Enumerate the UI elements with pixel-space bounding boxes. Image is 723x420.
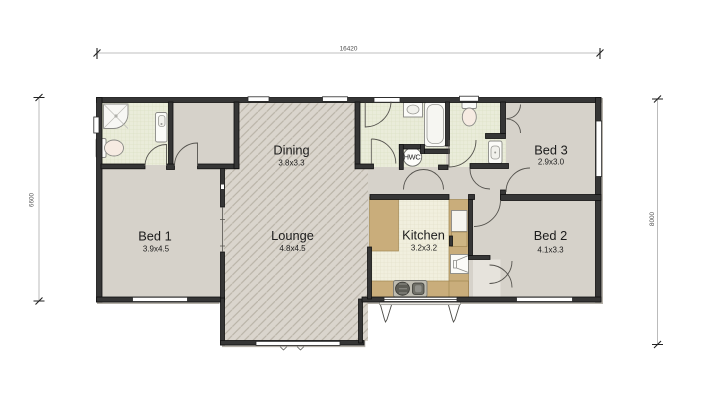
svg-text:Bed 2: Bed 2: [534, 228, 567, 243]
svg-text:Bed 1: Bed 1: [138, 229, 171, 244]
svg-text:Dining: Dining: [273, 143, 309, 158]
svg-text:HWC: HWC: [404, 153, 422, 162]
svg-text:3.8x3.3: 3.8x3.3: [278, 159, 305, 168]
svg-text:Kitchen: Kitchen: [402, 228, 445, 243]
svg-text:3.9x4.5: 3.9x4.5: [143, 245, 170, 254]
svg-text:4.8x4.5: 4.8x4.5: [279, 244, 306, 253]
svg-text:8000: 8000: [649, 211, 656, 226]
svg-text:Bed 3: Bed 3: [534, 143, 567, 158]
svg-text:3.2x3.2: 3.2x3.2: [411, 244, 438, 253]
svg-text:16420: 16420: [340, 46, 358, 53]
svg-text:4.1x3.3: 4.1x3.3: [537, 246, 564, 255]
svg-text:2.9x3.0: 2.9x3.0: [538, 158, 565, 167]
svg-text:Lounge: Lounge: [271, 228, 314, 243]
svg-text:6600: 6600: [29, 192, 36, 207]
